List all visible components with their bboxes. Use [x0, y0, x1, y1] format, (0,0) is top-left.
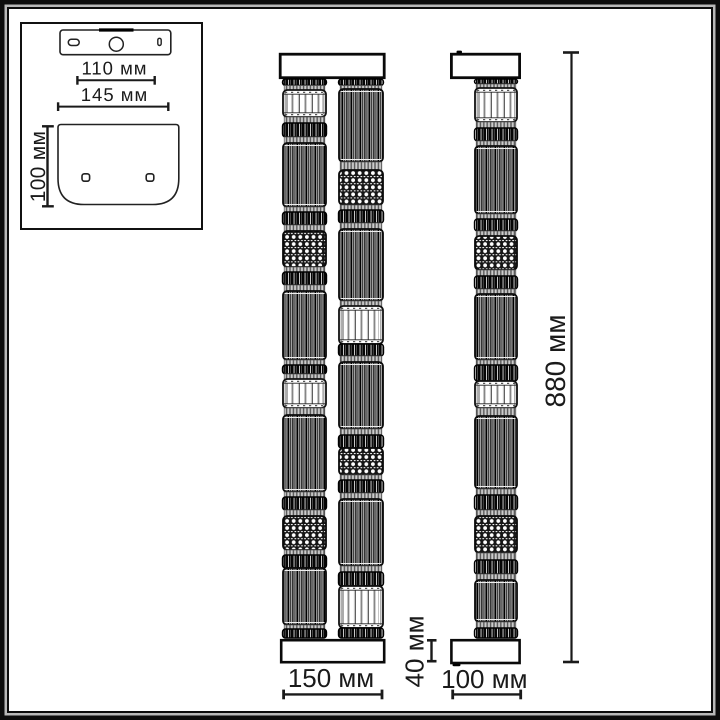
svg-text:150 мм: 150 мм: [288, 663, 374, 693]
svg-text:40 мм: 40 мм: [400, 616, 430, 688]
svg-text:880 мм: 880 мм: [540, 315, 571, 408]
svg-text:110 мм: 110 мм: [81, 58, 147, 79]
svg-text:145 мм: 145 мм: [81, 84, 148, 105]
svg-text:100 мм: 100 мм: [27, 131, 50, 203]
svg-text:100 мм: 100 мм: [441, 664, 527, 694]
